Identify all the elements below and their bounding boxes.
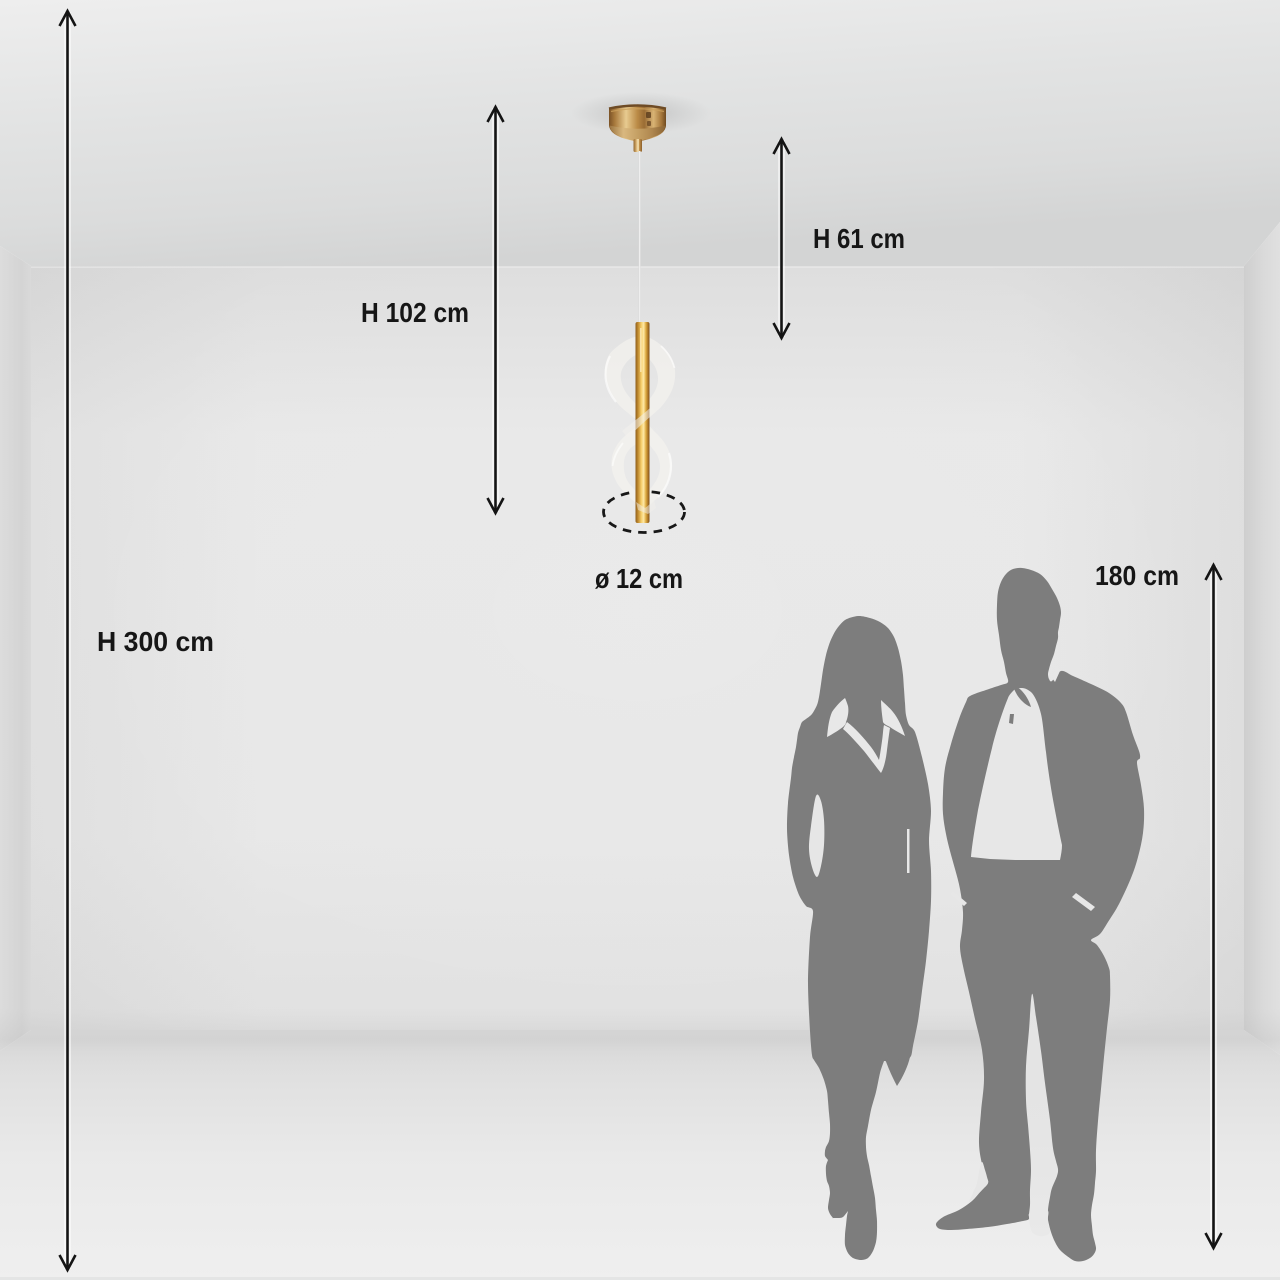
svg-text:180 cm: 180 cm <box>1095 560 1179 591</box>
svg-text:H 102 cm: H 102 cm <box>361 297 469 328</box>
svg-text:ø 12 cm: ø 12 cm <box>595 563 683 594</box>
svg-text:H 300 cm: H 300 cm <box>97 626 214 657</box>
svg-text:H 61 cm: H 61 cm <box>813 223 905 254</box>
